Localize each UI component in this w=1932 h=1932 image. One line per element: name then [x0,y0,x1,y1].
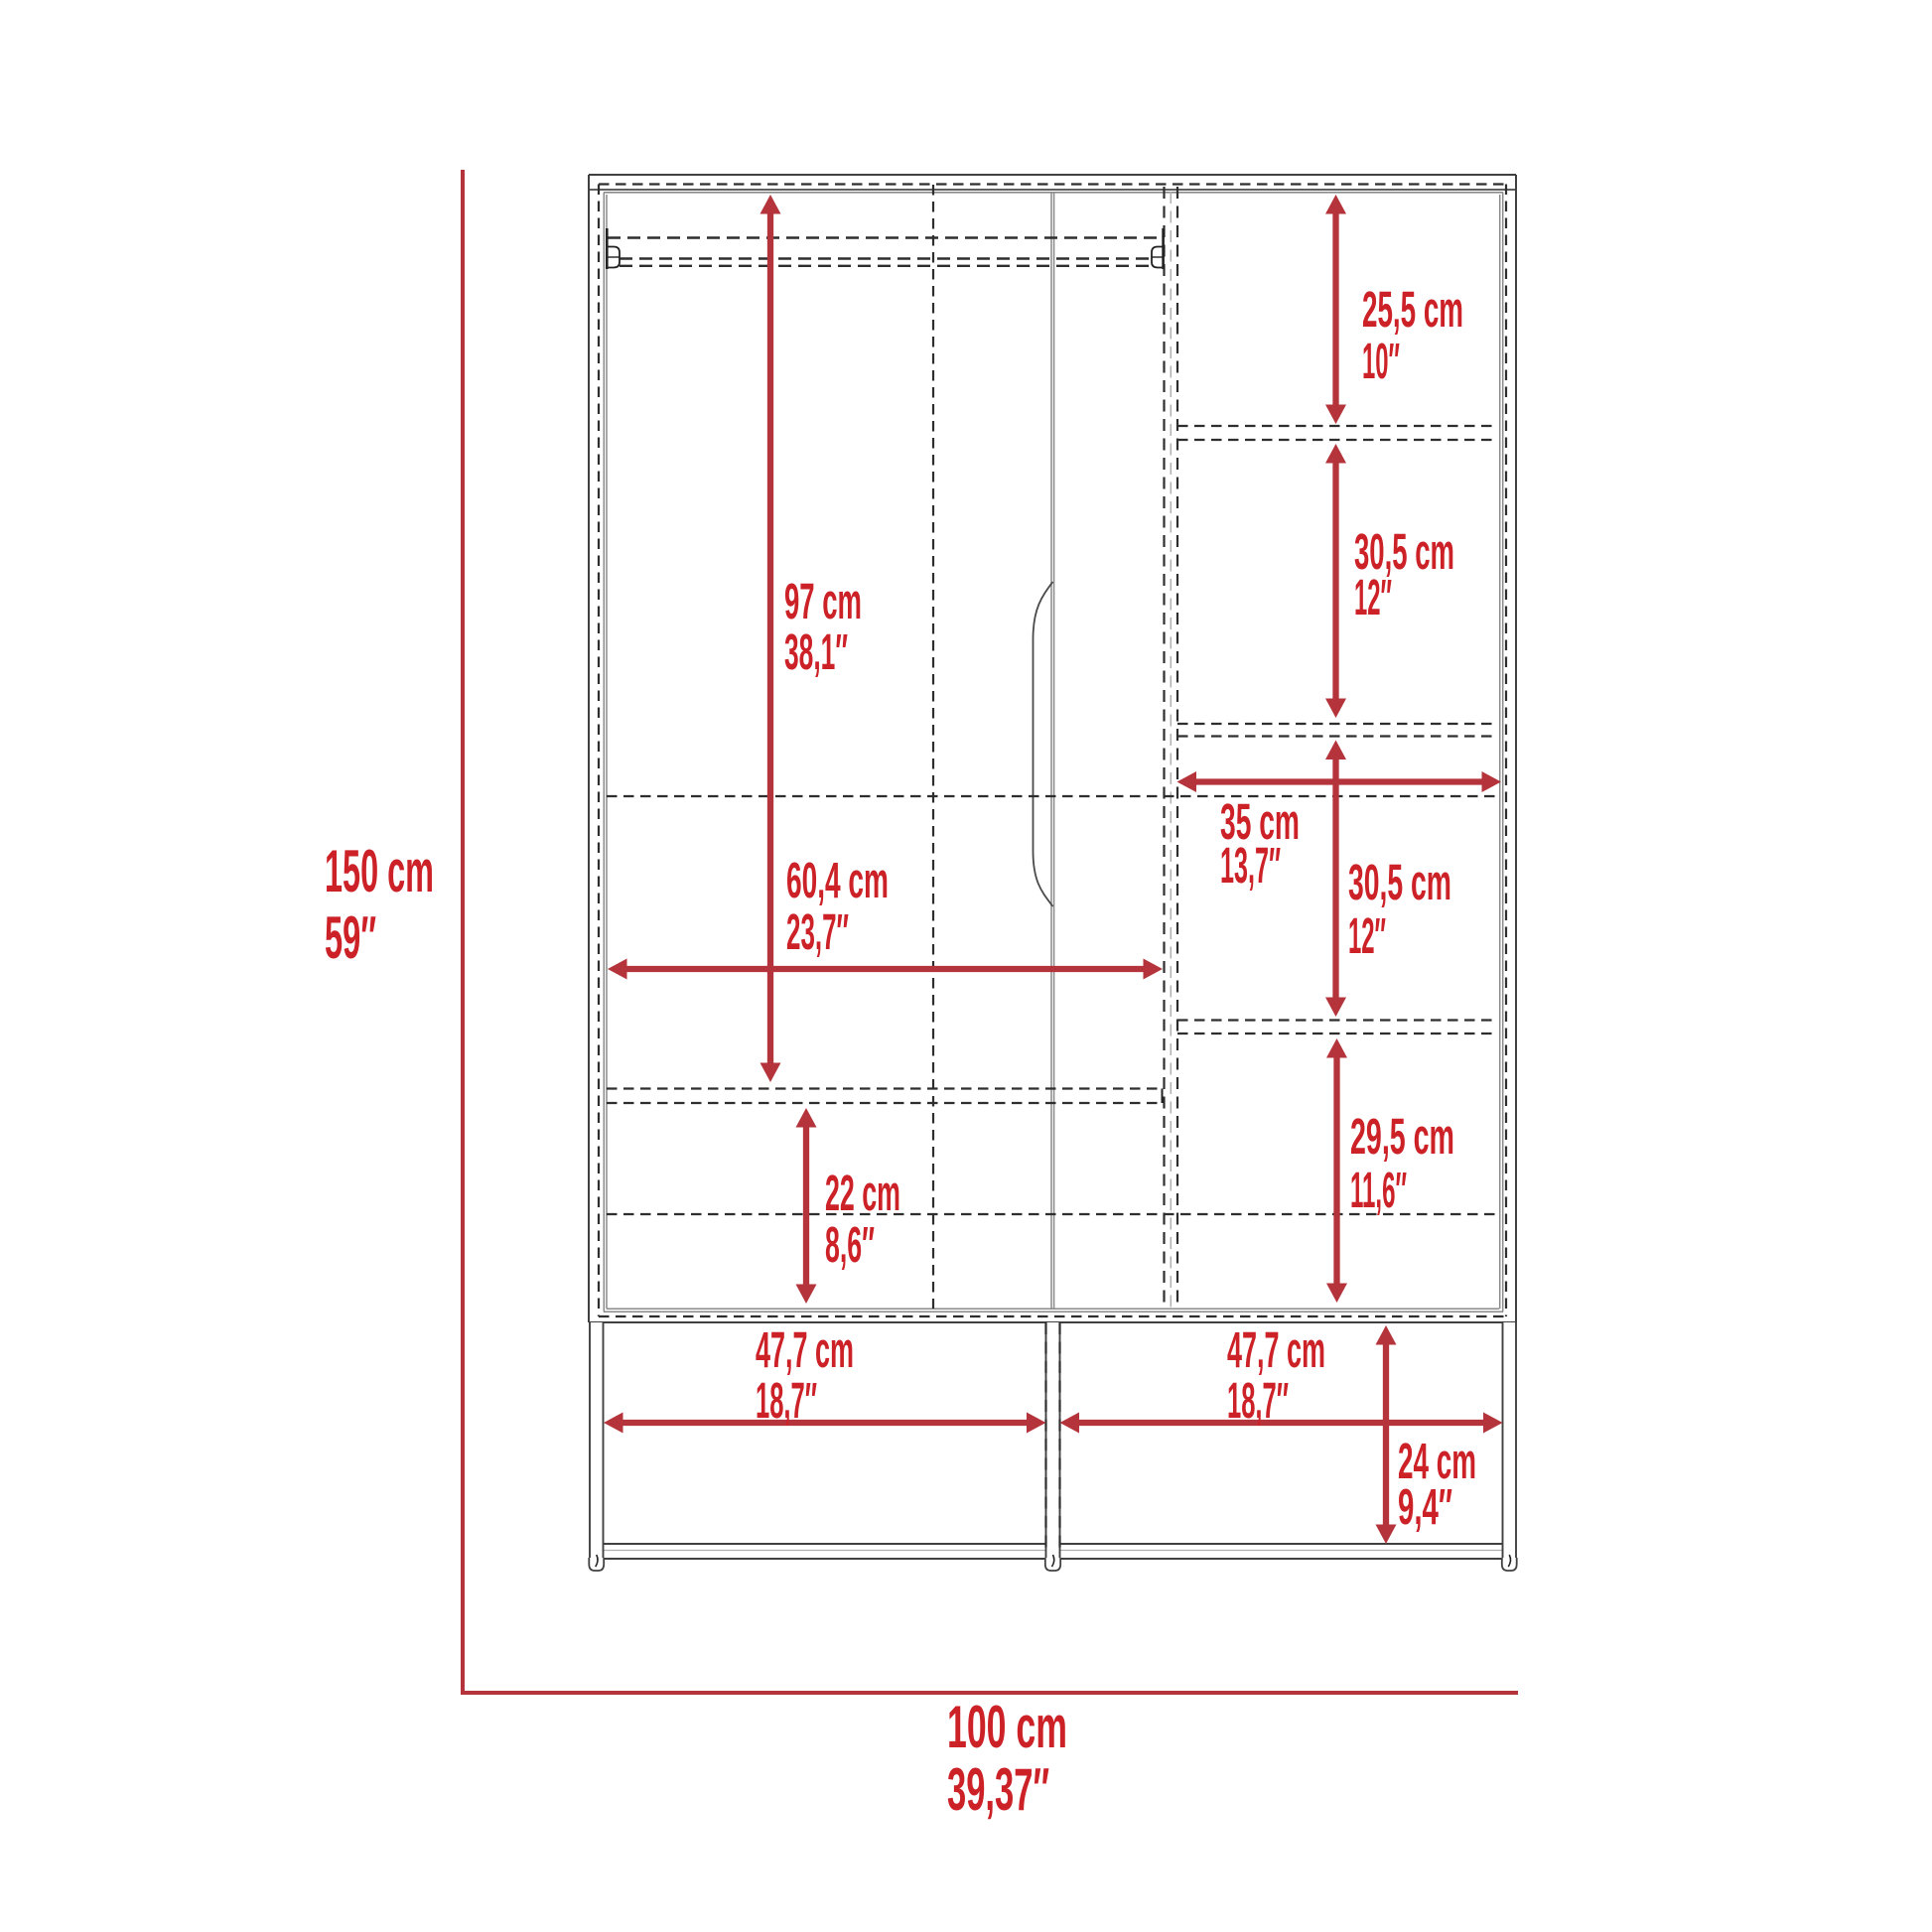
svg-text:22 cm: 22 cm [825,1165,900,1221]
svg-text:30,5 cm: 30,5 cm [1348,854,1451,910]
svg-text:18,7″: 18,7″ [1227,1372,1289,1429]
svg-text:39,37″: 39,37″ [947,1755,1049,1823]
svg-text:8,6″: 8,6″ [825,1216,875,1273]
svg-text:12″: 12″ [1354,569,1392,625]
svg-text:9,4″: 9,4″ [1398,1478,1452,1535]
svg-text:11,6″: 11,6″ [1350,1162,1407,1218]
svg-text:23,7″: 23,7″ [786,903,849,960]
svg-text:13,7″: 13,7″ [1220,837,1281,894]
svg-text:100 cm: 100 cm [947,1693,1067,1760]
svg-text:47,7 cm: 47,7 cm [1227,1321,1325,1378]
svg-text:60,4 cm: 60,4 cm [786,852,889,908]
svg-text:38,1″: 38,1″ [784,623,848,680]
svg-text:12″: 12″ [1348,907,1386,964]
svg-text:25,5 cm: 25,5 cm [1362,281,1463,338]
svg-text:59″: 59″ [325,903,376,971]
svg-text:18,7″: 18,7″ [756,1372,817,1429]
svg-text:47,7 cm: 47,7 cm [756,1321,854,1378]
svg-text:97 cm: 97 cm [784,573,862,629]
svg-text:150 cm: 150 cm [325,837,434,904]
svg-text:10″: 10″ [1362,333,1400,389]
svg-text:29,5 cm: 29,5 cm [1350,1108,1454,1165]
